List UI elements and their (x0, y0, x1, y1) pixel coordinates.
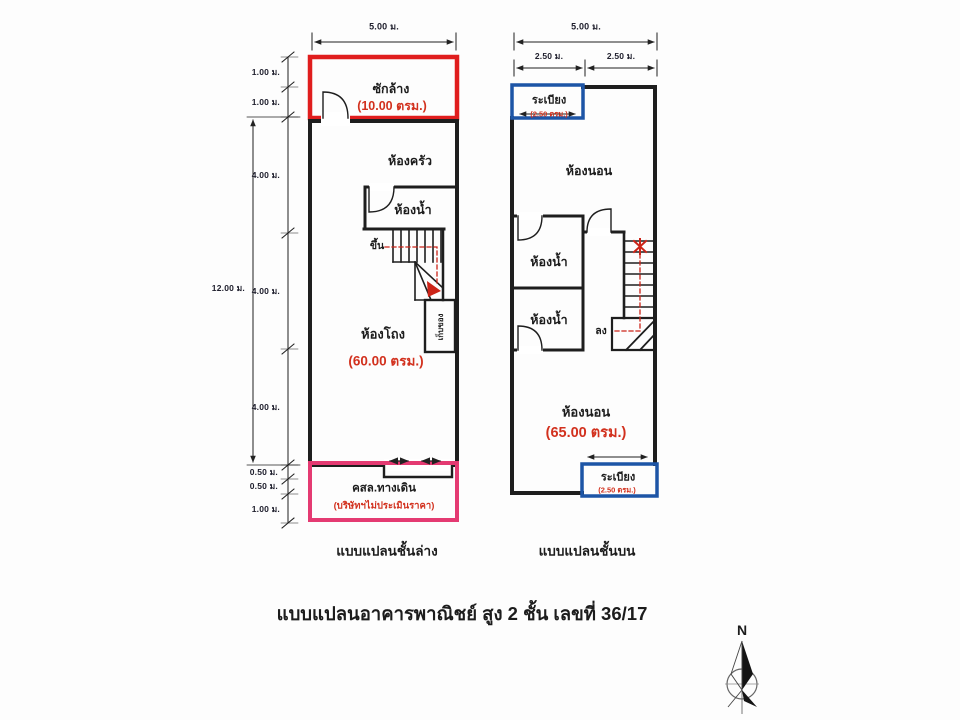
gf-stair-up-label: ขึ้น (370, 241, 384, 252)
uf-bathroom-lower-door-gap (517, 346, 543, 354)
gf-dim-left-2: 1.00 ม. (252, 98, 280, 107)
gf-bathroom-label: ห้องน้ำ (394, 204, 431, 217)
uf-bedroom-top-label: ห้องนอน (566, 165, 612, 178)
uf-caption: แบบแปลนชั้นบน (539, 544, 636, 558)
gf-hall-area: (60.00 ตรม.) (348, 354, 423, 368)
gf-dim-left-3: 4.00 ม. (252, 171, 280, 180)
uf-bedroom-bottom-area: (65.00 ตรม.) (546, 426, 627, 441)
gf-dim-left-5: 4.00 ม. (252, 403, 280, 412)
uf-balcony-top-label: ระเบียง (532, 96, 566, 107)
uf-bedroom-bottom-label: ห้องนอน (562, 406, 610, 419)
gf-dim-left-4: 4.00 ม. (252, 287, 280, 296)
uf-interior-walls (512, 216, 624, 350)
gf-dim-left-7: 0.50 ม. (250, 482, 278, 491)
uf-stair-down-label: ลง (595, 326, 607, 337)
gf-dim-left-8: 1.00 ม. (252, 505, 280, 514)
gf-walkway-label: คสล.ทางเดิน (352, 483, 416, 495)
gf-laundry-door-gap (321, 112, 350, 126)
gf-dim-top-label: 5.00 ม. (369, 23, 399, 32)
uf-dim-top-label: 5.00 ม. (571, 23, 601, 32)
uf-balcony-bottom-label: ระเบียง (601, 473, 635, 484)
compass-north-label: N (737, 623, 747, 637)
gf-top-dimension (312, 33, 456, 50)
uf-balcony-top-area: (2.50 ตรม.) (530, 110, 568, 118)
uf-dim-half-right: 2.50 ม. (607, 52, 635, 61)
uf-stairs (612, 241, 655, 350)
gf-hall-label: ห้องโถง (361, 328, 405, 341)
uf-bathroom-upper-door-gap (517, 212, 543, 220)
gf-kitchen-label: ห้องครัว (388, 155, 432, 168)
gf-dim-overall: 12.00 ม. (212, 284, 245, 293)
gf-laundry-area: (10.00 ตรม.) (357, 100, 427, 113)
uf-bathroom-lower-label: ห้องน้ำ (530, 314, 567, 327)
gf-bathroom-door-gap (369, 183, 394, 191)
page-title: แบบแปลนอาคารพาณิชย์ สูง 2 ชั้น เลขที่ 36… (277, 605, 648, 624)
gf-laundry-label: ซักล้าง (373, 83, 410, 96)
uf-bedroom-door-gap (587, 228, 611, 236)
gf-left-dimension-chain (281, 52, 298, 528)
gf-walkway-note: (บริษัทฯไม่ประเมินราคา) (334, 501, 435, 511)
gf-dim-left-1: 1.00 ม. (252, 68, 280, 77)
uf-stairs-down-path (612, 254, 640, 331)
uf-bathroom-upper-label: ห้องน้ำ (530, 256, 567, 269)
uf-balcony-bottom-area: (2.50 ตรม.) (598, 486, 636, 494)
gf-storage-label: เก็บของ (437, 314, 445, 341)
uf-dim-half-left: 2.50 ม. (535, 52, 563, 61)
gf-dim-left-6: 0.50 ม. (250, 468, 278, 477)
compass-north-needle-filled (742, 641, 753, 690)
compass (725, 641, 759, 714)
gf-caption: แบบแปลนชั้นล่าง (336, 544, 437, 558)
compass-north-needle-outline (731, 641, 742, 690)
